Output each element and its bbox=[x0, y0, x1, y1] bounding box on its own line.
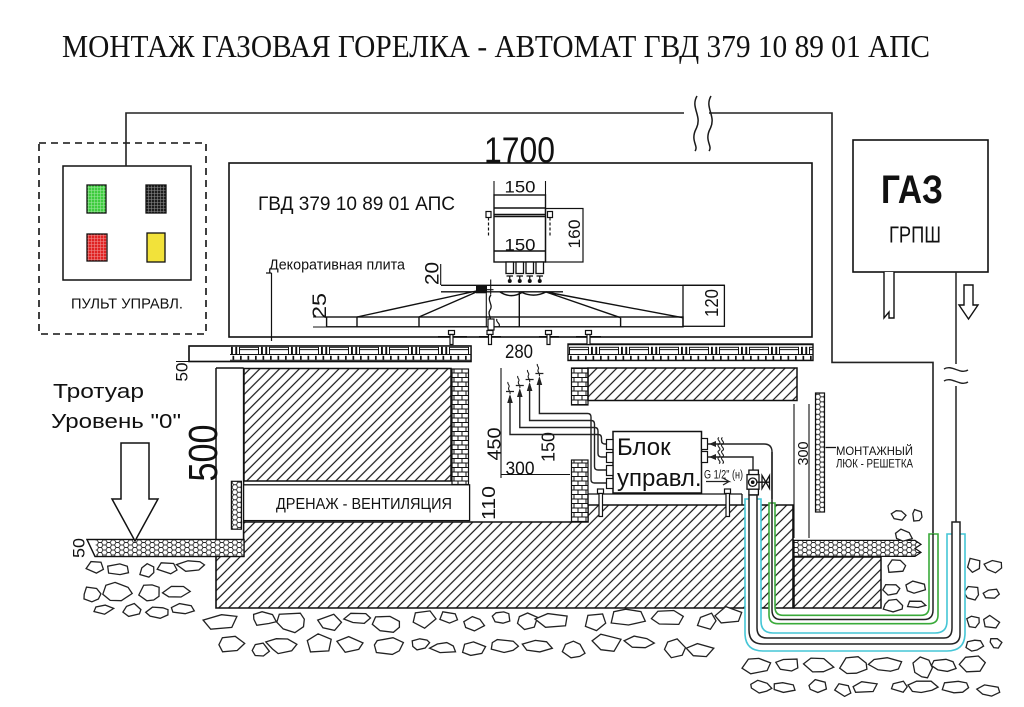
svg-text:150: 150 bbox=[505, 178, 536, 197]
svg-text:280: 280 bbox=[505, 342, 533, 363]
svg-text:500: 500 bbox=[180, 425, 226, 482]
svg-text:ПУЛЬТ УПРАВЛ.: ПУЛЬТ УПРАВЛ. bbox=[71, 297, 183, 313]
svg-text:G 1/2" (н): G 1/2" (н) bbox=[704, 470, 743, 482]
svg-text:110: 110 bbox=[479, 486, 499, 520]
svg-text:МОНТАЖ ГАЗОВАЯ ГОРЕЛКА - АВТОМ: МОНТАЖ ГАЗОВАЯ ГОРЕЛКА - АВТОМАТ ГВД 379… bbox=[62, 28, 930, 64]
svg-text:Тротуар: Тротуар bbox=[53, 381, 144, 403]
svg-text:ГРПШ: ГРПШ bbox=[889, 222, 941, 248]
svg-text:450: 450 bbox=[485, 428, 505, 461]
svg-text:Блок: Блок bbox=[617, 434, 671, 461]
svg-text:160: 160 bbox=[565, 220, 584, 249]
svg-text:50: 50 bbox=[173, 363, 192, 382]
svg-text:управл.: управл. bbox=[617, 465, 702, 492]
svg-text:300: 300 bbox=[506, 459, 535, 479]
svg-text:150: 150 bbox=[539, 432, 559, 462]
svg-text:1700: 1700 bbox=[484, 130, 555, 171]
svg-text:25: 25 bbox=[310, 293, 331, 319]
svg-text:50: 50 bbox=[70, 538, 89, 558]
svg-text:ГВД 379 10 89 01 АПС: ГВД 379 10 89 01 АПС bbox=[258, 194, 455, 215]
svg-text:ДРЕНАЖ - ВЕНТИЛЯЦИЯ: ДРЕНАЖ - ВЕНТИЛЯЦИЯ bbox=[276, 496, 452, 513]
svg-text:150: 150 bbox=[505, 236, 536, 255]
svg-text:ЛЮК - РЕШЕТКА: ЛЮК - РЕШЕТКА bbox=[836, 457, 913, 471]
svg-text:Уровень "0": Уровень "0" bbox=[51, 411, 181, 433]
svg-text:300: 300 bbox=[795, 442, 812, 466]
svg-text:120: 120 bbox=[702, 289, 722, 317]
svg-text:ГАЗ: ГАЗ bbox=[881, 168, 943, 212]
svg-text:Декоративная плита: Декоративная плита bbox=[269, 258, 406, 274]
